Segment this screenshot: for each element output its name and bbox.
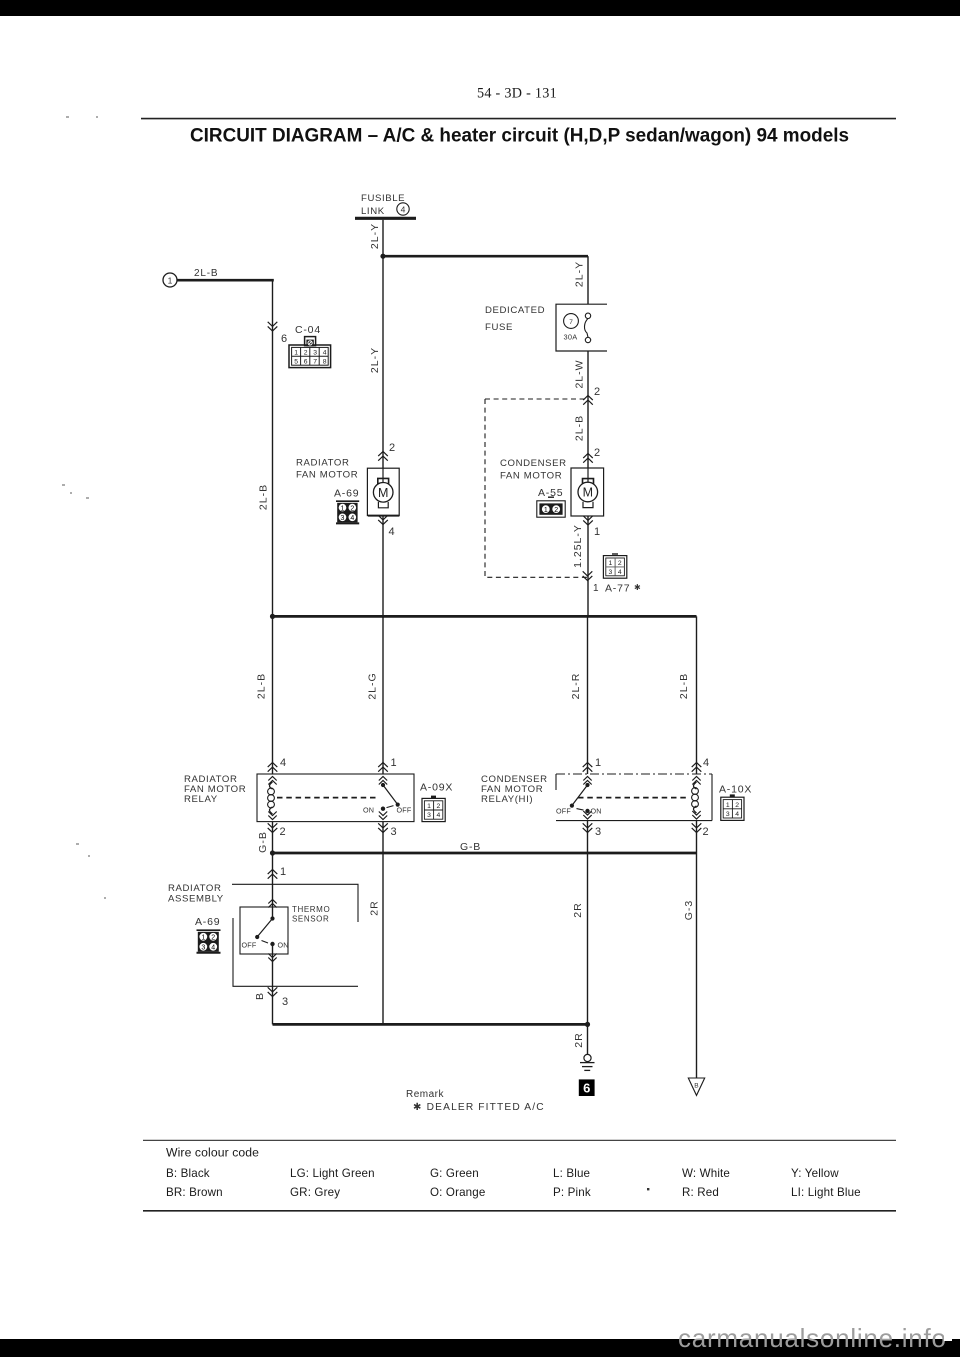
svg-text:Remark: Remark: [406, 1089, 445, 1100]
svg-text:GR: Grey: GR: Grey: [290, 1186, 340, 1199]
svg-text:4: 4: [211, 945, 215, 952]
svg-text:2: 2: [594, 386, 600, 398]
svg-text:A-09X: A-09X: [420, 782, 453, 794]
svg-text:3: 3: [201, 945, 205, 952]
svg-text:A-69: A-69: [334, 488, 359, 500]
svg-text:1: 1: [544, 507, 548, 514]
svg-text:2: 2: [389, 442, 395, 454]
svg-text:A-69: A-69: [195, 916, 220, 928]
svg-text:2: 2: [437, 803, 441, 810]
svg-text:2L-B: 2L-B: [573, 415, 585, 441]
svg-text:RELAY: RELAY: [184, 794, 218, 805]
svg-text:B: B: [254, 992, 266, 1000]
svg-text:7: 7: [569, 319, 573, 326]
svg-text:2L-B: 2L-B: [194, 268, 218, 279]
svg-text:RADIATOR: RADIATOR: [296, 458, 350, 469]
svg-text:2L-B: 2L-B: [255, 673, 267, 699]
svg-text:6: 6: [304, 358, 308, 365]
svg-text:3: 3: [595, 826, 601, 838]
svg-text:2: 2: [350, 506, 354, 513]
svg-text:1: 1: [168, 275, 173, 285]
svg-text:1: 1: [726, 802, 730, 809]
svg-text:2L-Y: 2L-Y: [369, 223, 381, 249]
svg-text:1: 1: [594, 526, 600, 538]
svg-text:G-3: G-3: [683, 900, 695, 921]
svg-text:✱: ✱: [634, 583, 641, 592]
svg-text:B: B: [694, 1083, 699, 1090]
svg-text:6: 6: [281, 333, 287, 345]
svg-text:8: 8: [323, 358, 327, 365]
svg-text:1: 1: [609, 560, 613, 567]
svg-text:✱ DEALER FITTED A/C: ✱ DEALER FITTED A/C: [413, 1102, 545, 1113]
svg-text:DEDICATED: DEDICATED: [485, 305, 545, 316]
svg-text:1: 1: [391, 757, 397, 769]
svg-text:2: 2: [703, 826, 709, 838]
svg-text:A-77: A-77: [605, 583, 630, 595]
svg-text:LG: Light Green: LG: Light Green: [290, 1167, 375, 1180]
svg-text:Y: Yellow: Y: Yellow: [791, 1167, 839, 1180]
svg-text:FUSE: FUSE: [485, 322, 513, 333]
svg-text:OFF: OFF: [242, 940, 257, 949]
svg-text:C-04: C-04: [295, 324, 321, 336]
svg-text:4: 4: [735, 811, 739, 818]
svg-text:4: 4: [323, 349, 327, 356]
svg-text:R: Red: R: Red: [682, 1186, 719, 1199]
svg-text:1: 1: [280, 866, 286, 878]
svg-text:G: Green: G: Green: [430, 1167, 479, 1180]
svg-text:P: Pink: P: Pink: [553, 1186, 591, 1199]
svg-text:CONDENSER: CONDENSER: [500, 458, 567, 469]
svg-text:2L-B: 2L-B: [257, 484, 269, 510]
svg-text:OFF: OFF: [556, 806, 571, 815]
svg-text:A-10X: A-10X: [719, 784, 752, 796]
svg-text:FUSIBLE: FUSIBLE: [361, 193, 405, 204]
svg-text:OFF: OFF: [397, 805, 412, 814]
svg-text:1: 1: [201, 935, 205, 942]
svg-text:3: 3: [341, 515, 345, 522]
svg-text:G-B: G-B: [257, 831, 269, 853]
svg-text:2: 2: [618, 560, 622, 567]
svg-text:ON: ON: [363, 805, 374, 814]
svg-text:FAN MOTOR: FAN MOTOR: [296, 470, 358, 481]
svg-text:LI: Light Blue: LI: Light Blue: [791, 1186, 861, 1199]
svg-text:2L-Y: 2L-Y: [369, 347, 381, 373]
svg-text:1: 1: [593, 583, 599, 594]
svg-text:7: 7: [313, 358, 317, 365]
svg-text:RADIATOR: RADIATOR: [168, 883, 222, 894]
svg-text:1: 1: [294, 349, 298, 356]
svg-text:B: Black: B: Black: [166, 1167, 210, 1180]
svg-text:W: White: W: White: [682, 1167, 730, 1180]
svg-text:2L-Y: 2L-Y: [573, 261, 585, 287]
svg-text:4: 4: [618, 569, 622, 576]
svg-text:LINK: LINK: [361, 206, 385, 217]
svg-text:CIRCUIT DIAGRAM – A/C & heater: CIRCUIT DIAGRAM – A/C & heater circuit (…: [190, 126, 849, 147]
svg-text:M: M: [378, 486, 388, 500]
svg-text:2: 2: [304, 349, 308, 356]
svg-text:RELAY(HI): RELAY(HI): [481, 794, 533, 805]
svg-text:ASSEMBLY: ASSEMBLY: [168, 894, 224, 905]
svg-text:O: Orange: O: Orange: [430, 1186, 485, 1199]
svg-text:2: 2: [280, 826, 286, 838]
svg-text:4: 4: [280, 757, 286, 769]
svg-text:1.25L-Y: 1.25L-Y: [572, 524, 584, 568]
svg-text:ON: ON: [278, 940, 289, 949]
svg-text:2: 2: [735, 802, 739, 809]
svg-text:L: Blue: L: Blue: [553, 1167, 590, 1180]
svg-text:2: 2: [554, 507, 558, 514]
svg-text:3: 3: [391, 826, 397, 838]
svg-text:SENSOR: SENSOR: [292, 915, 329, 924]
svg-text:6: 6: [583, 1081, 590, 1096]
svg-text:2L-R: 2L-R: [570, 673, 582, 700]
svg-text:1: 1: [427, 803, 431, 810]
svg-text:1: 1: [341, 506, 345, 513]
svg-text:2R: 2R: [368, 900, 380, 915]
svg-text:3: 3: [609, 569, 613, 576]
svg-text:THERMO: THERMO: [292, 905, 330, 914]
svg-text:3: 3: [726, 811, 730, 818]
svg-text:FAN MOTOR: FAN MOTOR: [500, 471, 562, 482]
svg-text:2L-G: 2L-G: [366, 672, 378, 699]
svg-text:54 - 3D - 131: 54 - 3D - 131: [477, 86, 557, 102]
svg-text:3: 3: [427, 812, 431, 819]
svg-text:4: 4: [389, 526, 395, 538]
svg-text:4: 4: [703, 757, 709, 769]
svg-text:2R: 2R: [572, 902, 584, 917]
svg-text:3: 3: [282, 996, 288, 1008]
svg-text:2: 2: [594, 447, 600, 459]
svg-text:30A: 30A: [563, 333, 577, 342]
svg-text:2: 2: [211, 935, 215, 942]
svg-text:1: 1: [595, 757, 601, 769]
svg-text:4: 4: [437, 812, 441, 819]
svg-text:G-B: G-B: [460, 841, 481, 853]
svg-text:BR: Brown: BR: Brown: [166, 1186, 223, 1199]
svg-text:2L-B: 2L-B: [678, 673, 690, 699]
svg-text:2L-W: 2L-W: [573, 359, 585, 388]
svg-text:M: M: [583, 486, 593, 500]
svg-text:Wire colour code: Wire colour code: [166, 1146, 259, 1160]
svg-text:ON: ON: [591, 806, 602, 815]
svg-text:4: 4: [350, 515, 354, 522]
svg-text:3: 3: [313, 349, 317, 356]
svg-text:5: 5: [294, 358, 298, 365]
svg-text:2R: 2R: [573, 1032, 585, 1047]
svg-text:4: 4: [401, 204, 406, 214]
